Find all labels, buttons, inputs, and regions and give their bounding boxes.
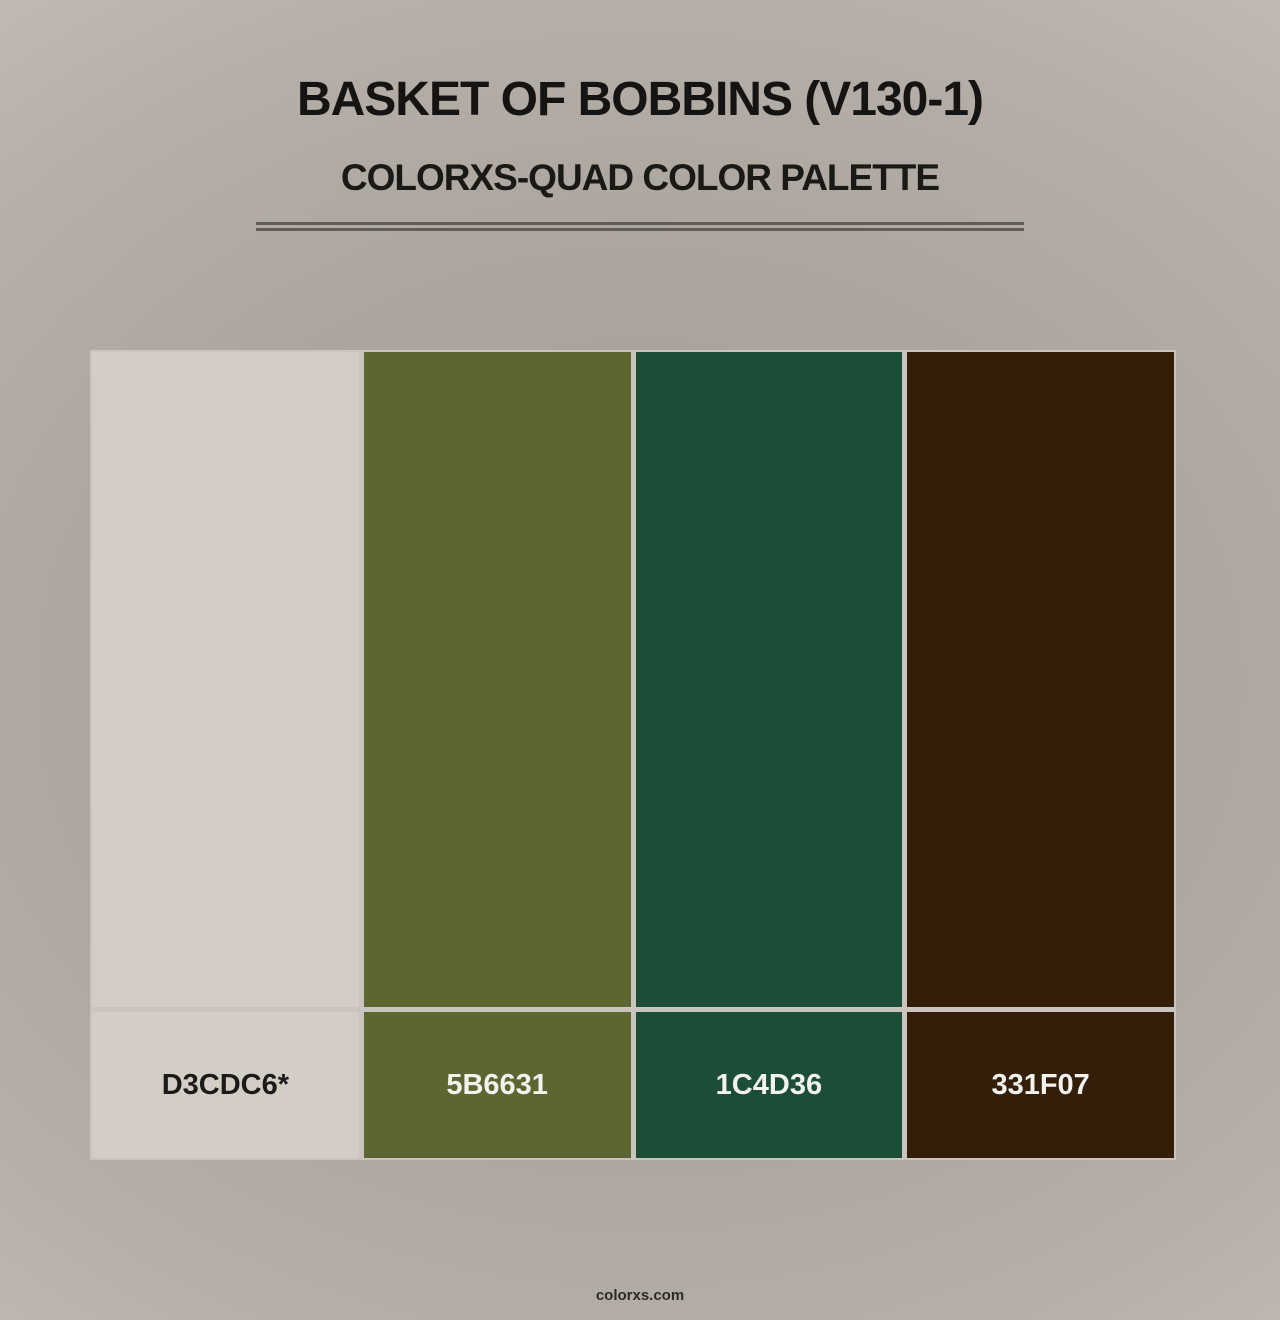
swatch-block-2 <box>364 352 631 1007</box>
page-title: BASKET OF BOBBINS (V130-1) <box>0 76 1280 124</box>
swatch-hex-label-3: 1C4D36 <box>716 1069 822 1102</box>
swatch-block-1 <box>92 352 359 1007</box>
title-divider <box>256 222 1024 231</box>
swatch-block-3 <box>636 352 903 1007</box>
swatch-hex-label-1: D3CDC6* <box>162 1069 289 1102</box>
swatch-hex-label-4: 331F07 <box>991 1069 1089 1102</box>
swatch-hex-label-2: 5B6631 <box>446 1069 548 1102</box>
swatch-label-cell-4: 331F07 <box>907 1012 1174 1158</box>
swatch-label-cell-1: D3CDC6* <box>92 1012 359 1158</box>
swatch-label-cell-2: 5B6631 <box>364 1012 631 1158</box>
page-subtitle: COLORXS-QUAD COLOR PALETTE <box>0 159 1280 196</box>
palette-grid: D3CDC6* 5B6631 1C4D36 331F07 <box>90 350 1176 1160</box>
swatch-block-4 <box>907 352 1174 1007</box>
swatch-label-cell-3: 1C4D36 <box>636 1012 903 1158</box>
footer-watermark: colorxs.com <box>0 1287 1280 1304</box>
header: BASKET OF BOBBINS (V130-1) COLORXS-QUAD … <box>0 0 1280 231</box>
